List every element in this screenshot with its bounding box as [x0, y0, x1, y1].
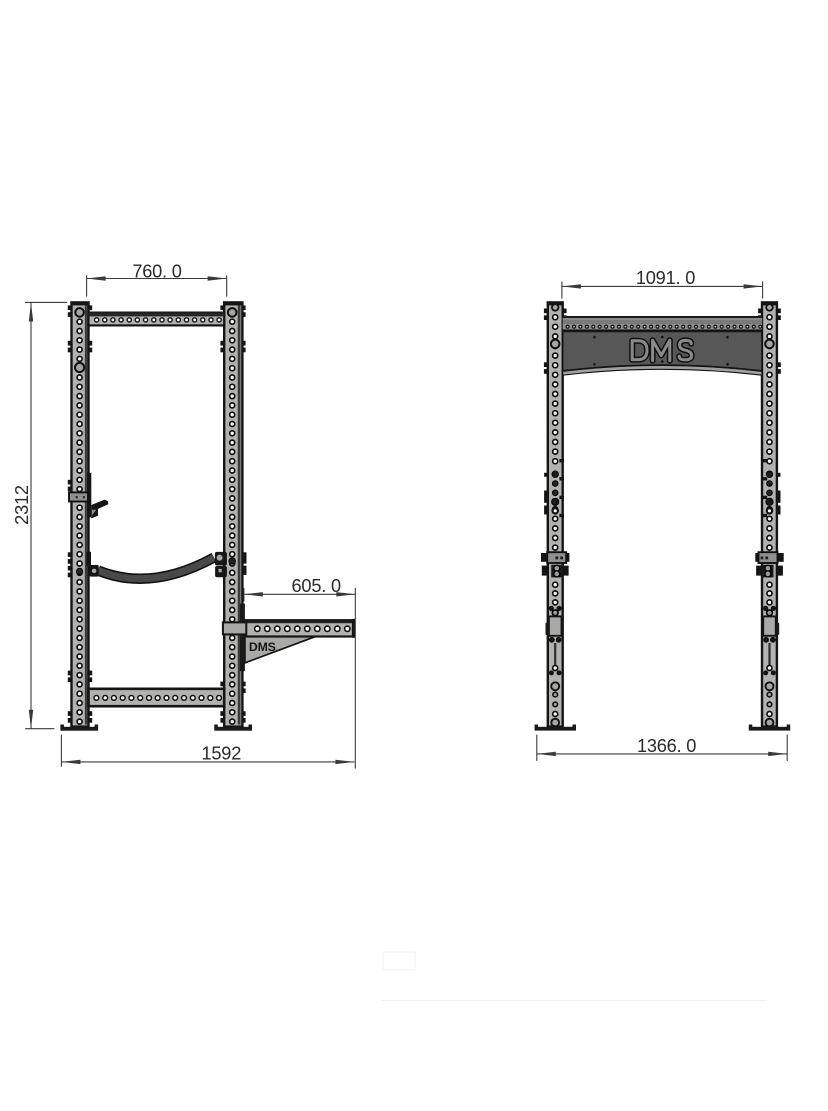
svg-text:1592: 1592 [201, 744, 241, 764]
svg-text:1091. 0: 1091. 0 [636, 268, 695, 288]
svg-text:2312: 2312 [12, 485, 32, 525]
svg-text:605. 0: 605. 0 [292, 576, 341, 596]
svg-text:DMS: DMS [249, 640, 276, 654]
svg-text:1366. 0: 1366. 0 [637, 736, 696, 756]
